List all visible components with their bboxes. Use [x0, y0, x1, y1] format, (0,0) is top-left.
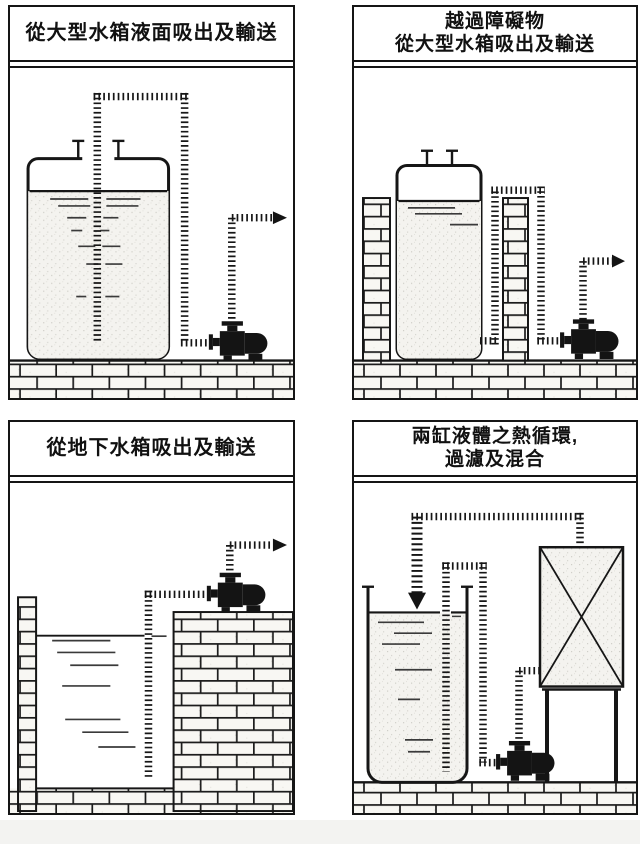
panel-title: 越過障礙物 從大型水箱吸出及輸送	[354, 7, 636, 60]
panel-two-tank-circulation: 兩缸液體之熱循環, 過濾及混合	[352, 420, 638, 815]
panel-title-line: 過濾及混合	[445, 449, 545, 471]
stand-legs	[542, 689, 621, 782]
discharge-pipe-dashed	[583, 261, 612, 320]
flow-arrow-right	[273, 539, 287, 552]
discharge-pipe-dashed	[519, 671, 542, 742]
title-separator	[354, 475, 636, 483]
diagram-scene	[354, 483, 636, 813]
brick-wall-obstacle	[503, 198, 528, 361]
top-circulation-pipe	[412, 513, 584, 548]
diagram-scene	[354, 68, 636, 398]
brick-floor	[354, 782, 636, 813]
pump-icon	[207, 573, 266, 613]
panel-title: 從大型水箱液面吸出及輸送	[10, 7, 293, 60]
open-tank	[362, 587, 473, 783]
diagram-scene	[10, 483, 293, 813]
return-arrow-down	[408, 593, 426, 610]
pump-icon	[209, 321, 268, 361]
panel-title-line: 越過障礙物	[445, 11, 545, 33]
return-pipe-down	[408, 517, 426, 610]
panel-title-line: 從地下水箱吸出及輸送	[47, 437, 257, 460]
filter-heat-exchanger-box	[540, 547, 623, 686]
pump-icon	[560, 319, 618, 359]
title-separator	[10, 475, 293, 483]
panel-title: 從地下水箱吸出及輸送	[10, 422, 293, 475]
brick-platform	[174, 612, 293, 811]
panel-title: 兩缸液體之熱循環, 過濾及混合	[354, 422, 636, 475]
page-margin	[0, 820, 640, 844]
title-separator	[354, 60, 636, 68]
tank-vent-nozzles	[421, 151, 458, 166]
brick-wall-left	[18, 597, 36, 811]
large-tank	[397, 151, 481, 361]
liquid	[370, 612, 466, 781]
title-separator	[10, 60, 293, 68]
panel-title-line: 從大型水箱吸出及輸送	[395, 34, 595, 56]
water-level-dashes	[52, 641, 135, 747]
discharge-pipe-dashed	[230, 545, 273, 574]
discharge-pipe-dashed	[232, 218, 273, 322]
brick-wall-left	[363, 198, 390, 361]
brick-floor	[10, 361, 293, 398]
panel-over-obstacle: 越過障礙物 從大型水箱吸出及輸送	[352, 5, 638, 400]
diagram-scene	[10, 68, 293, 398]
flow-arrow-right	[273, 211, 287, 224]
panel-suction-from-surface: 從大型水箱液面吸出及輸送	[8, 5, 295, 400]
flow-arrow-right	[612, 255, 625, 268]
panel-underground-tank: 從地下水箱吸出及輸送	[8, 420, 295, 815]
brick-floor	[354, 361, 636, 398]
panel-title-line: 從大型水箱液面吸出及輸送	[26, 22, 278, 45]
panel-title-line: 兩缸液體之熱循環,	[412, 426, 578, 448]
